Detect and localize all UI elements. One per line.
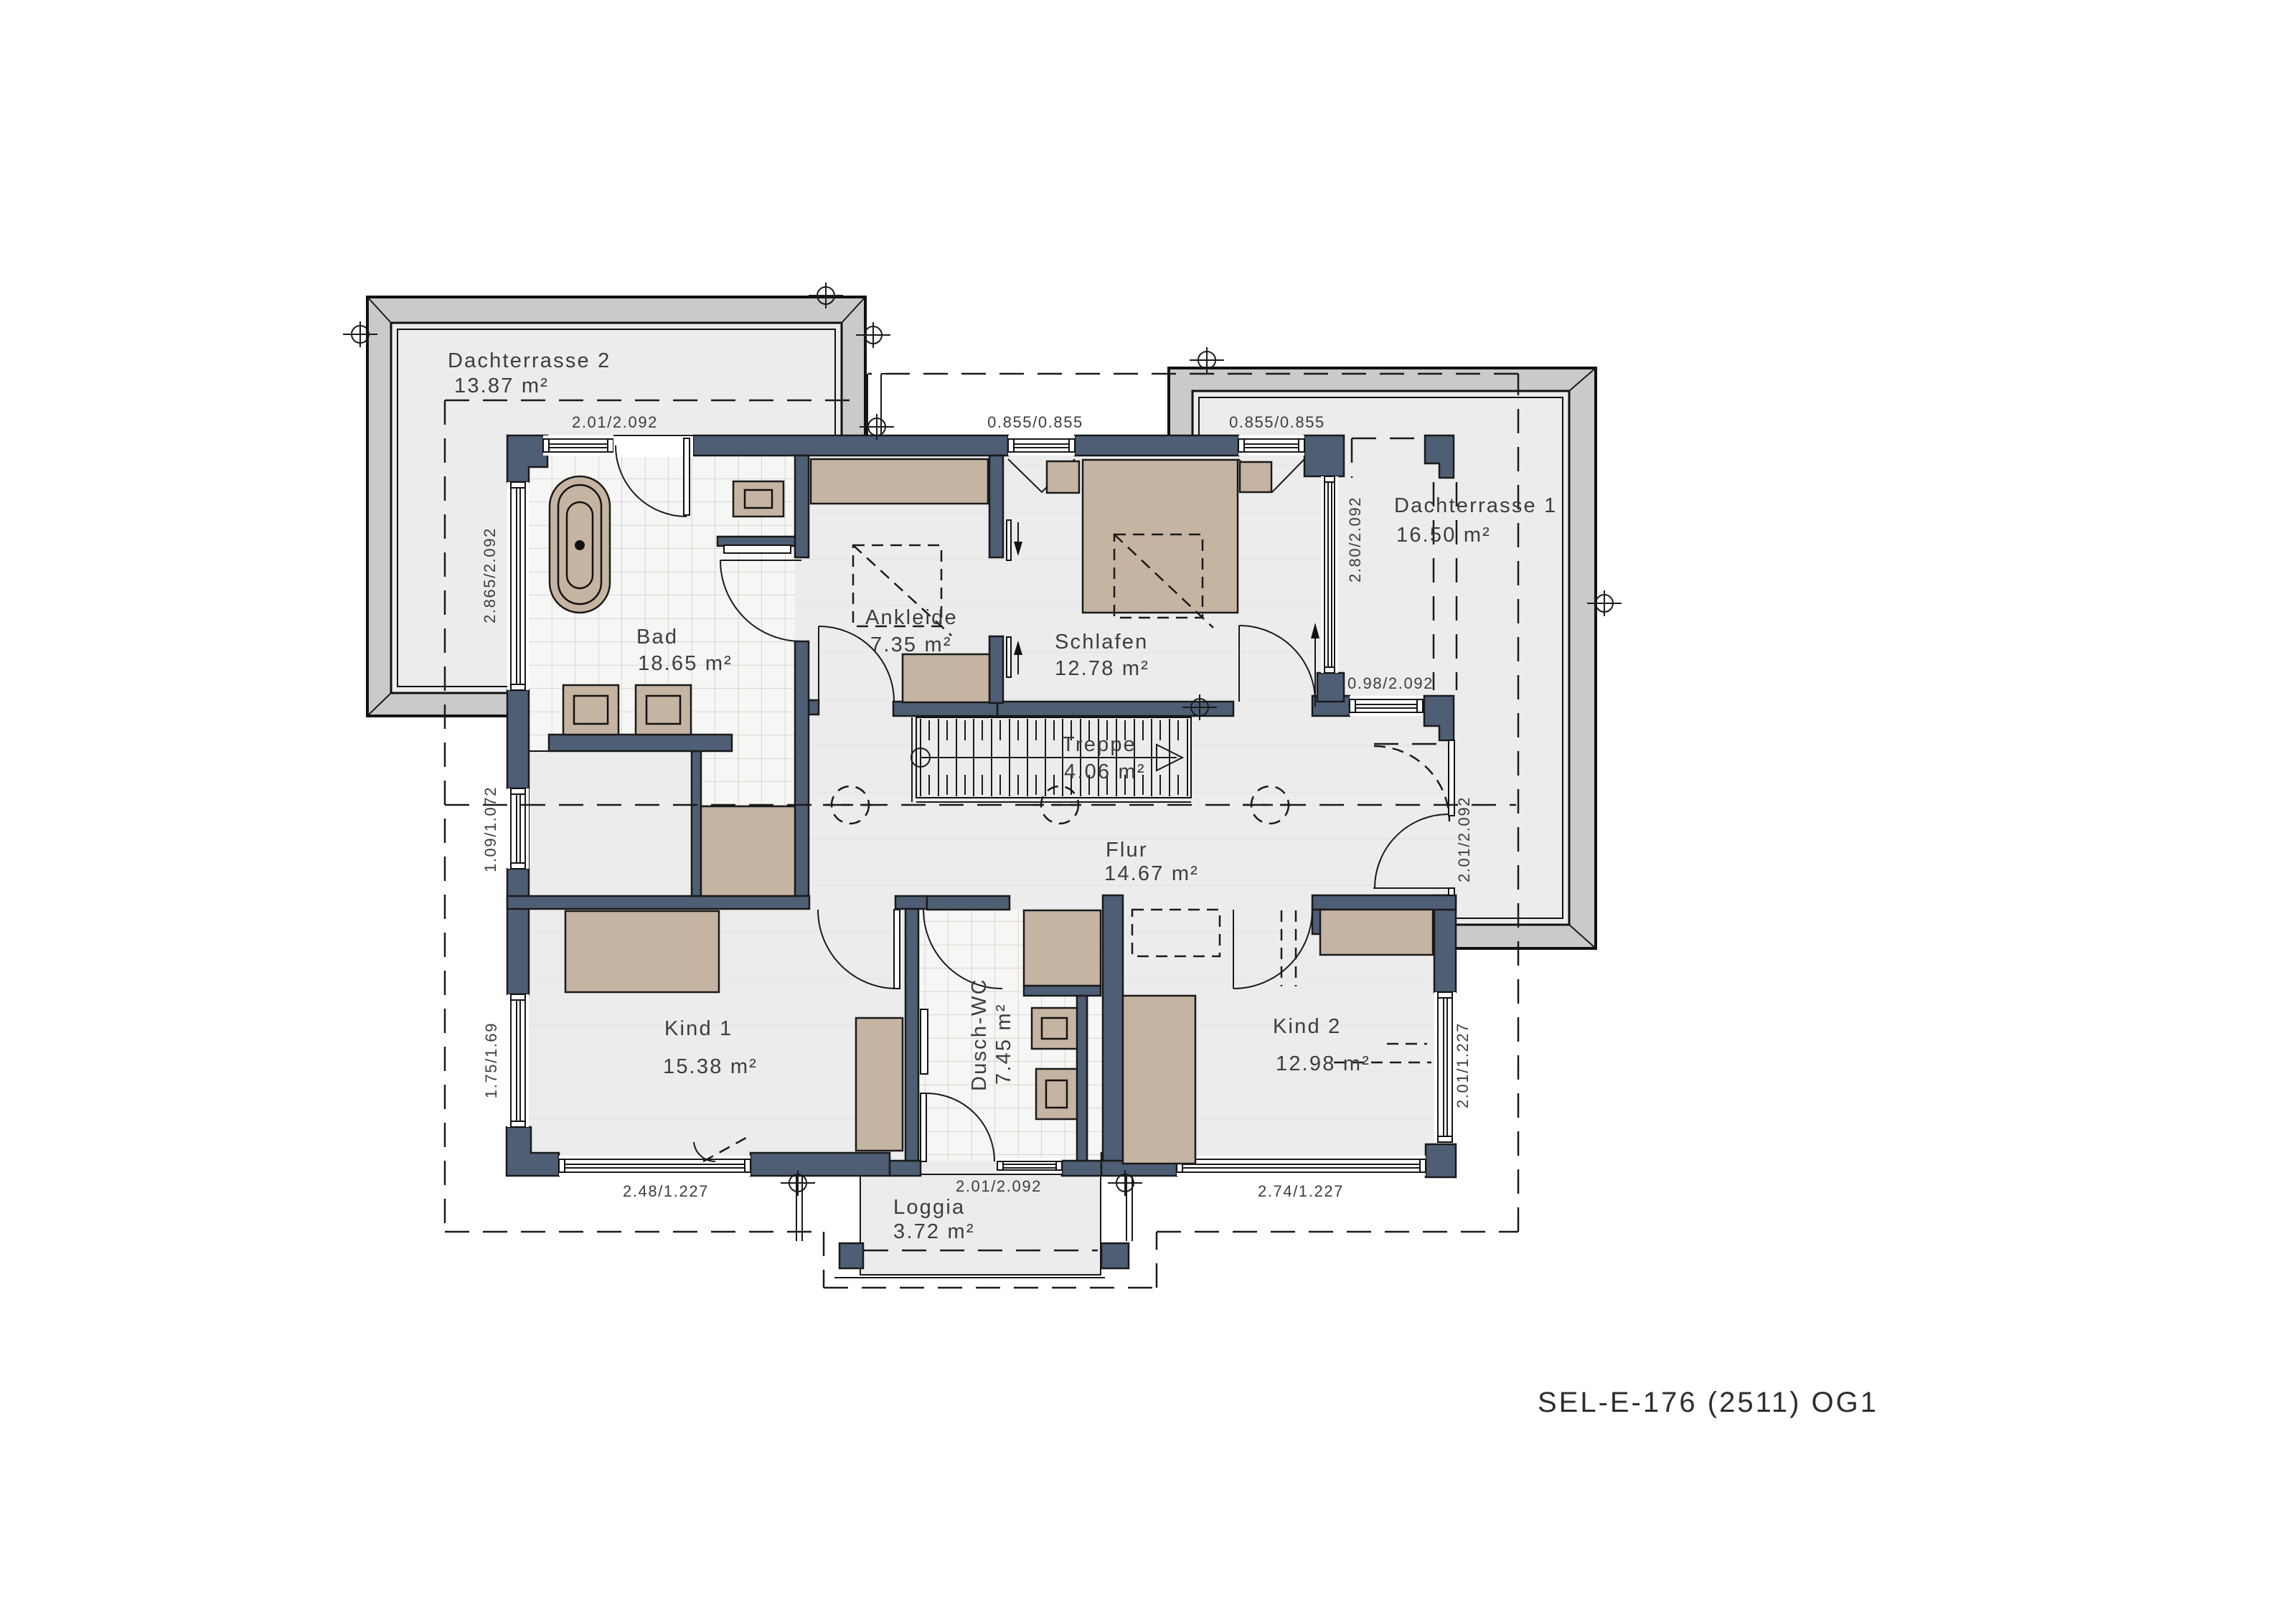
svg-text:3.72 m²: 3.72 m² bbox=[893, 1220, 975, 1243]
svg-text:2.01/2.092: 2.01/2.092 bbox=[1455, 796, 1473, 882]
svg-text:Ankleide: Ankleide bbox=[865, 606, 958, 629]
svg-text:Bad: Bad bbox=[636, 626, 678, 649]
svg-text:Kind 2: Kind 2 bbox=[1273, 1015, 1341, 1038]
svg-text:13.87 m²: 13.87 m² bbox=[454, 374, 549, 397]
svg-text:7.45 m²: 7.45 m² bbox=[992, 1003, 1015, 1085]
svg-text:Kind 1: Kind 1 bbox=[664, 1017, 733, 1040]
svg-text:14.67 m²: 14.67 m² bbox=[1104, 862, 1199, 885]
svg-text:2.80/2.092: 2.80/2.092 bbox=[1346, 496, 1364, 583]
svg-text:2.01/2.092: 2.01/2.092 bbox=[572, 413, 658, 431]
svg-text:12.78 m²: 12.78 m² bbox=[1055, 657, 1149, 680]
svg-text:2.01/1.227: 2.01/1.227 bbox=[1454, 1022, 1472, 1108]
svg-text:2.48/1.227: 2.48/1.227 bbox=[623, 1182, 709, 1200]
svg-text:Dachterrasse 2: Dachterrasse 2 bbox=[448, 349, 611, 372]
svg-text:Loggia: Loggia bbox=[893, 1196, 965, 1219]
svg-text:7.35 m²: 7.35 m² bbox=[870, 633, 952, 656]
svg-text:2.01/2.092: 2.01/2.092 bbox=[956, 1177, 1042, 1195]
svg-text:0.98/2.092: 0.98/2.092 bbox=[1347, 674, 1434, 692]
svg-text:2.74/1.227: 2.74/1.227 bbox=[1258, 1182, 1344, 1200]
svg-text:SEL-E-176 (2511) OG1: SEL-E-176 (2511) OG1 bbox=[1538, 1387, 1878, 1418]
svg-text:1.75/1.69: 1.75/1.69 bbox=[482, 1022, 500, 1098]
svg-text:0.855/0.855: 0.855/0.855 bbox=[1229, 413, 1325, 431]
svg-text:15.38 m²: 15.38 m² bbox=[663, 1055, 758, 1078]
svg-text:2.865/2.092: 2.865/2.092 bbox=[481, 527, 499, 623]
svg-text:0.855/0.855: 0.855/0.855 bbox=[987, 413, 1083, 431]
svg-text:Dachterrasse 1: Dachterrasse 1 bbox=[1394, 494, 1557, 517]
svg-text:Dusch-WC: Dusch-WC bbox=[968, 978, 991, 1091]
svg-text:Flur: Flur bbox=[1106, 839, 1148, 862]
svg-text:16.50 m²: 16.50 m² bbox=[1396, 524, 1491, 547]
svg-text:Treppe: Treppe bbox=[1062, 733, 1137, 756]
svg-text:12.98 m²: 12.98 m² bbox=[1276, 1052, 1370, 1075]
svg-text:1.09/1.072: 1.09/1.072 bbox=[481, 786, 499, 872]
svg-text:Schlafen: Schlafen bbox=[1055, 631, 1148, 654]
svg-text:4.06 m²: 4.06 m² bbox=[1064, 760, 1146, 783]
svg-text:18.65 m²: 18.65 m² bbox=[638, 652, 733, 675]
